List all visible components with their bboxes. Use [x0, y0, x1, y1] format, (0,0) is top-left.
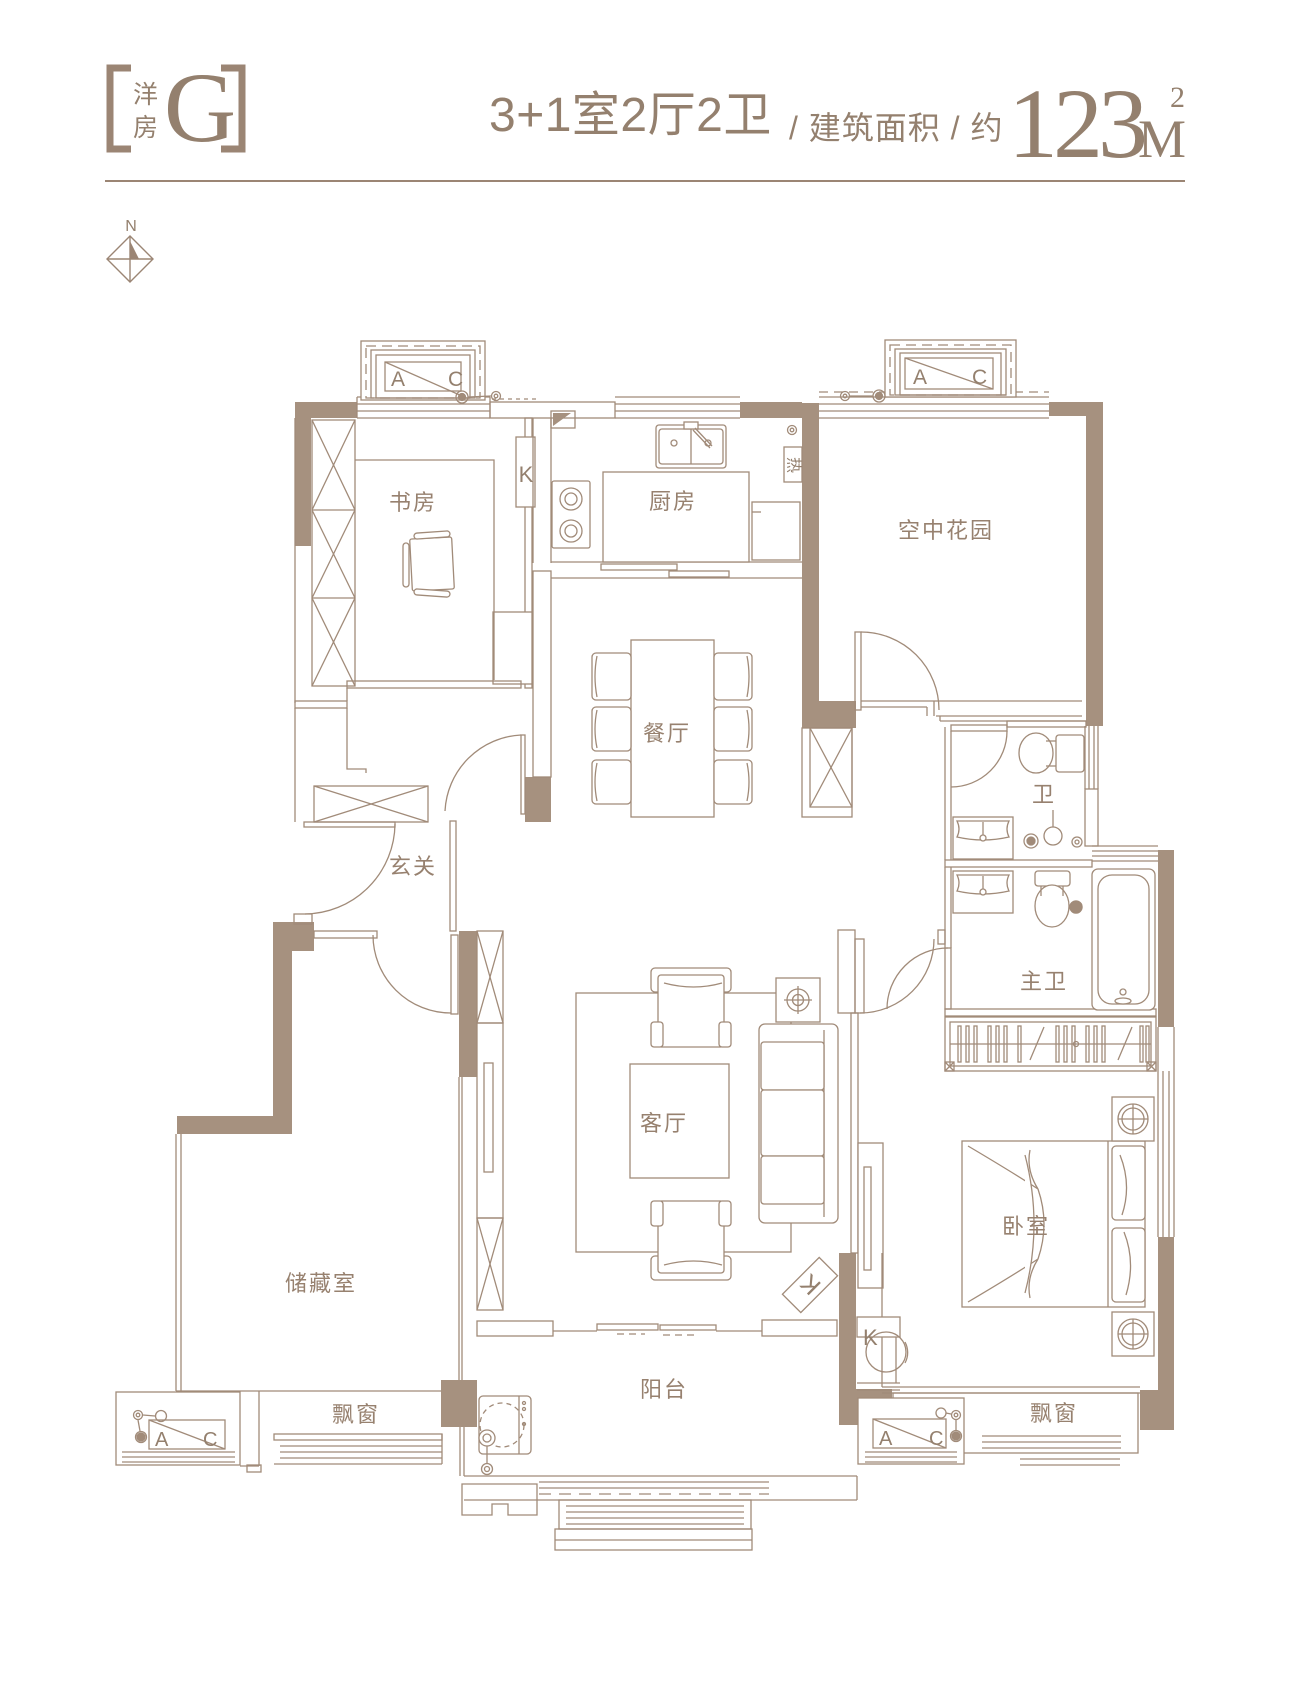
svg-text:A: A: [391, 368, 405, 391]
svg-text:书房: 书房: [389, 490, 437, 515]
svg-text:2: 2: [1170, 81, 1185, 114]
svg-text:M: M: [1138, 109, 1186, 169]
svg-text:123: 123: [1008, 68, 1145, 179]
svg-text:C: C: [972, 366, 987, 389]
svg-text:N: N: [125, 218, 137, 235]
svg-text:A: A: [155, 1429, 169, 1451]
svg-text:飘窗: 飘窗: [332, 1402, 380, 1427]
svg-text:卧室: 卧室: [1002, 1214, 1050, 1239]
svg-text:厨房: 厨房: [649, 489, 697, 514]
svg-text:热: 热: [785, 457, 803, 473]
svg-text:主卫: 主卫: [1020, 969, 1068, 994]
svg-text:/ 建筑面积 / 约: / 建筑面积 / 约: [789, 110, 1003, 146]
svg-text:阳台: 阳台: [640, 1377, 688, 1402]
svg-text:A: A: [879, 1428, 893, 1450]
svg-text:C: C: [448, 368, 463, 391]
svg-text:房: 房: [133, 114, 158, 142]
svg-text:C: C: [929, 1428, 943, 1450]
svg-text:K: K: [519, 462, 534, 487]
svg-text:3+1室2厅2卫: 3+1室2厅2卫: [489, 89, 772, 142]
svg-text:客厅: 客厅: [640, 1111, 688, 1136]
svg-text:空中花园: 空中花园: [898, 518, 994, 543]
svg-text:K: K: [863, 1325, 878, 1350]
svg-text:A: A: [913, 366, 927, 389]
svg-text:玄关: 玄关: [389, 854, 437, 879]
svg-text:卫: 卫: [1032, 782, 1056, 807]
svg-text:储藏室: 储藏室: [285, 1271, 357, 1296]
svg-text:餐厅: 餐厅: [643, 721, 691, 746]
svg-text:C: C: [203, 1429, 217, 1451]
svg-text:洋: 洋: [133, 81, 158, 109]
svg-text:飘窗: 飘窗: [1030, 1401, 1078, 1426]
